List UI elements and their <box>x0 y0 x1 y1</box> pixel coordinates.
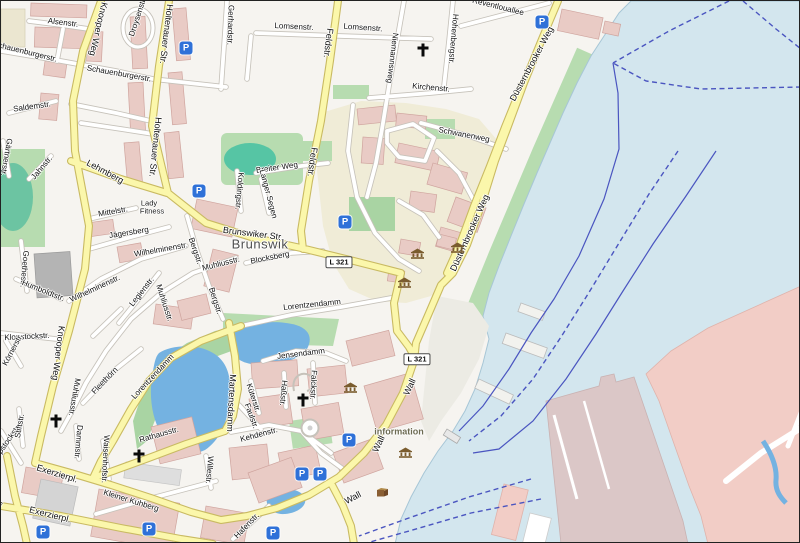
place-label: Brunswik <box>232 238 289 251</box>
street-label: Lehmberg <box>85 159 125 186</box>
road-ref-badge: L 321 <box>403 353 430 365</box>
street-label: Saldemstr. <box>13 100 52 113</box>
street-label: Muhliusstr. <box>67 377 82 416</box>
poi-label: Fitness <box>140 207 164 215</box>
street-label: Schauenburgerstr. <box>86 64 152 83</box>
street-label: Langer Segen <box>258 169 279 220</box>
street-label: Düsternbrooker Weg <box>449 193 491 272</box>
street-label: Kirchenstr. <box>412 82 450 93</box>
street-label: Rathausstr. <box>138 426 179 445</box>
street-label: Muhliusstr. <box>154 284 173 323</box>
street-label: Jahnstr. <box>30 155 54 182</box>
parking-icon: P <box>536 16 549 29</box>
street-label: Knooper Weg <box>50 325 66 381</box>
parking-icon: P <box>296 468 309 481</box>
street-label: Lorentzendamm <box>130 353 175 401</box>
street-label: Mittelstr. <box>98 205 129 218</box>
street-label: Jensendamm <box>277 347 326 361</box>
street-label: Klopstockstr. <box>0 423 22 465</box>
street-label: Wall <box>343 490 362 506</box>
parking-icon: P <box>143 523 156 536</box>
church-cross-icon <box>133 450 146 463</box>
church-cross-icon <box>50 415 63 428</box>
street-label: Droysenstr. <box>128 0 148 37</box>
street-label: Wall <box>371 434 386 453</box>
street-label: Wilhelminenstr. <box>134 241 189 258</box>
street-label: Hohenbergstr. <box>447 14 459 65</box>
street-label: Wall <box>402 377 417 396</box>
street-label: Humboldtstr. <box>21 279 66 303</box>
street-label: Bergstr. <box>207 287 223 316</box>
parking-icon: P <box>180 42 193 55</box>
street-label: Wilhelminenstr. <box>69 274 122 304</box>
parking-icon: P <box>267 527 280 540</box>
street-label: Reventlouallee <box>471 0 524 17</box>
street-label: Martensdamm <box>225 374 237 432</box>
parking-icon: P <box>37 526 50 539</box>
street-label: Kleiner Kuhberg <box>102 489 159 513</box>
street-label: Holtenauer Str. <box>147 117 162 178</box>
street-label: Faulstr. <box>243 402 259 429</box>
street-label: Holtenauer Str. <box>158 4 174 65</box>
street-label: Falckstr. <box>308 370 318 400</box>
street-label: Küterstr. <box>245 383 262 414</box>
street-label: Haßstr. <box>278 380 288 406</box>
street-label: Feldstr. <box>305 147 318 177</box>
street-label: Gerhardstr. <box>225 5 234 45</box>
street-label: Stiftstr. <box>14 413 26 438</box>
street-label: Düsternbrooker Weg <box>509 25 556 102</box>
street-label: Breiter Weg <box>256 161 299 175</box>
street-label: Willestr. <box>204 456 214 485</box>
street-label: Schwanenweg <box>438 126 491 144</box>
street-label: Feldstr. <box>322 28 335 58</box>
street-label: Kehdenstr. <box>239 426 278 444</box>
street-label: Fleethörn <box>90 366 119 396</box>
street-label: Exerzierpl. <box>28 505 71 524</box>
parking-icon: P <box>314 468 327 481</box>
street-label: Lomsenstr. <box>343 23 383 34</box>
street-label: Lorentzendamm <box>283 298 341 312</box>
street-label: Knooper Weg <box>87 1 108 56</box>
street-label: Niemannsweg <box>385 32 399 83</box>
street-label: Dammstr. <box>73 425 84 460</box>
street-label: Bergstr. <box>187 237 204 266</box>
street-label: Blocksberg <box>250 250 290 265</box>
street-label: Waisenhofstr. <box>100 435 111 484</box>
parking-icon: P <box>343 434 356 447</box>
street-label: Schauenburgerstr. <box>0 40 58 64</box>
poi-label: Lady <box>141 199 157 207</box>
parking-icon: P <box>339 216 352 229</box>
church-cross-icon <box>297 394 310 407</box>
street-label: Brunswiker Str. <box>222 226 283 242</box>
street-label: Goethestr. <box>18 250 29 287</box>
street-label: Jägersberg <box>109 226 150 240</box>
street-label: Alsenstr. <box>47 17 78 29</box>
poi-label: information <box>374 428 424 437</box>
map-label-overlay: Alsenstr.Schauenburgerstr.Schauenburgers… <box>1 1 799 542</box>
street-label: Exerzierpl. <box>35 463 78 484</box>
map-canvas[interactable]: Alsenstr.Schauenburgerstr.Schauenburgers… <box>0 0 800 543</box>
street-label: Koldingstr. <box>233 172 244 210</box>
road-ref-badge: L 321 <box>325 256 352 268</box>
street-label: Lomsenstr. <box>274 22 314 32</box>
street-label: Legienstr. <box>128 276 156 308</box>
street-label: Schützenwall <box>0 499 5 542</box>
street-label: Klopstockstr. <box>4 332 50 342</box>
church-cross-icon <box>417 44 430 57</box>
street-label: Gärtnerstr. <box>0 138 13 177</box>
parking-icon: P <box>193 185 206 198</box>
street-label: Körnerstr. <box>1 333 24 367</box>
street-label: Muhliusstr. <box>201 255 240 272</box>
street-label: Hafenstr. <box>233 512 261 541</box>
